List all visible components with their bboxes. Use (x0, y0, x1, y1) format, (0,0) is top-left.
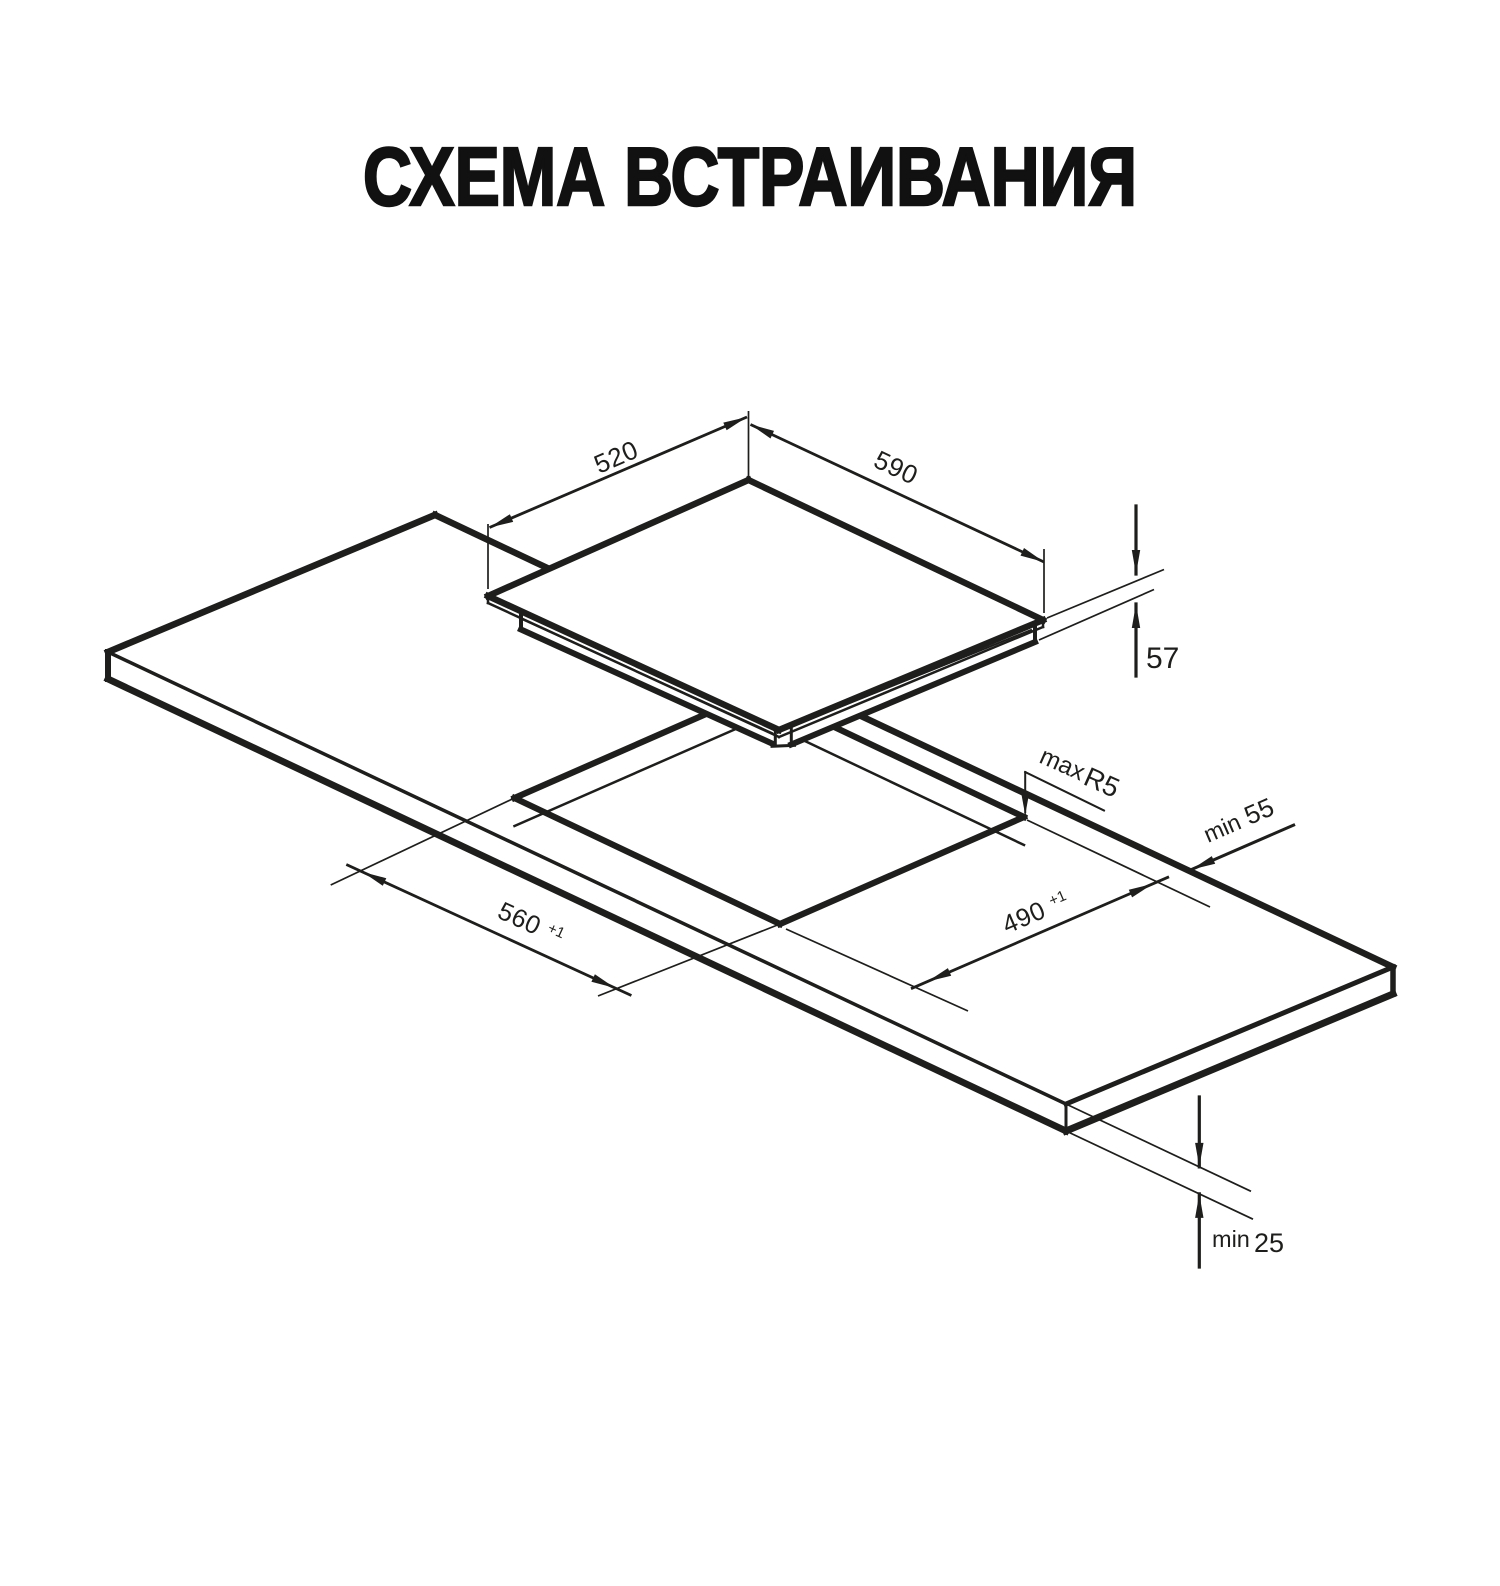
svg-text:57: 57 (1146, 642, 1179, 675)
svg-text:min: min (1212, 1226, 1250, 1252)
svg-text:СХЕМА ВСТРАИВАНИЯ: СХЕМА ВСТРАИВАНИЯ (363, 130, 1137, 223)
svg-text:25: 25 (1254, 1228, 1284, 1258)
